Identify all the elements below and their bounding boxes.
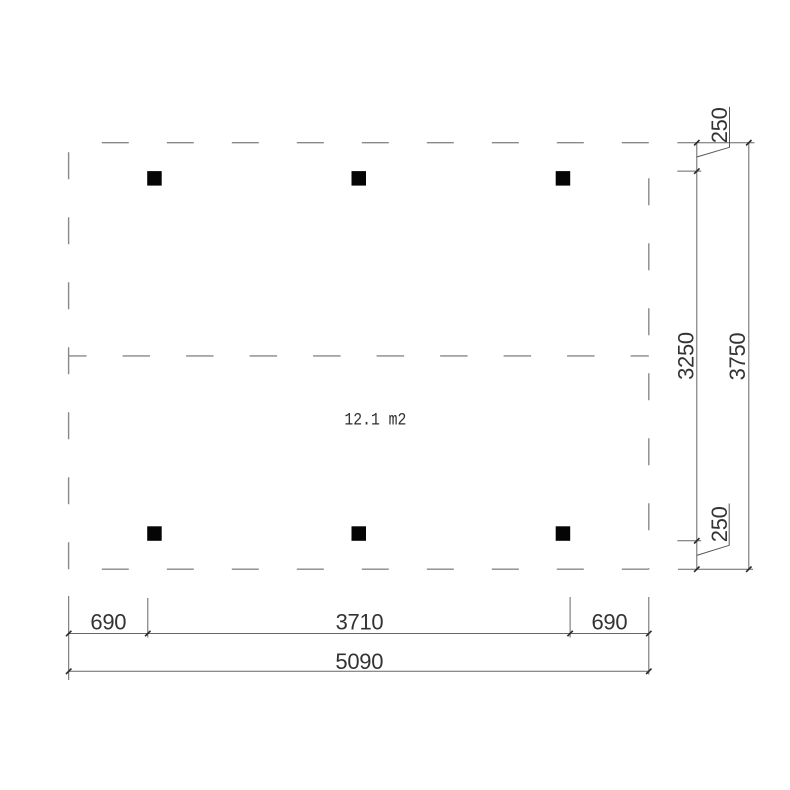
svg-text:690: 690: [90, 610, 126, 635]
svg-text:3250: 3250: [674, 332, 699, 380]
svg-text:3710: 3710: [336, 610, 384, 635]
svg-text:690: 690: [591, 610, 627, 635]
svg-text:250: 250: [707, 107, 732, 143]
svg-text:3750: 3750: [725, 333, 750, 381]
svg-text:250: 250: [707, 506, 732, 542]
svg-text:12.1 m2: 12.1 m2: [344, 409, 406, 430]
svg-text:5090: 5090: [335, 649, 383, 674]
